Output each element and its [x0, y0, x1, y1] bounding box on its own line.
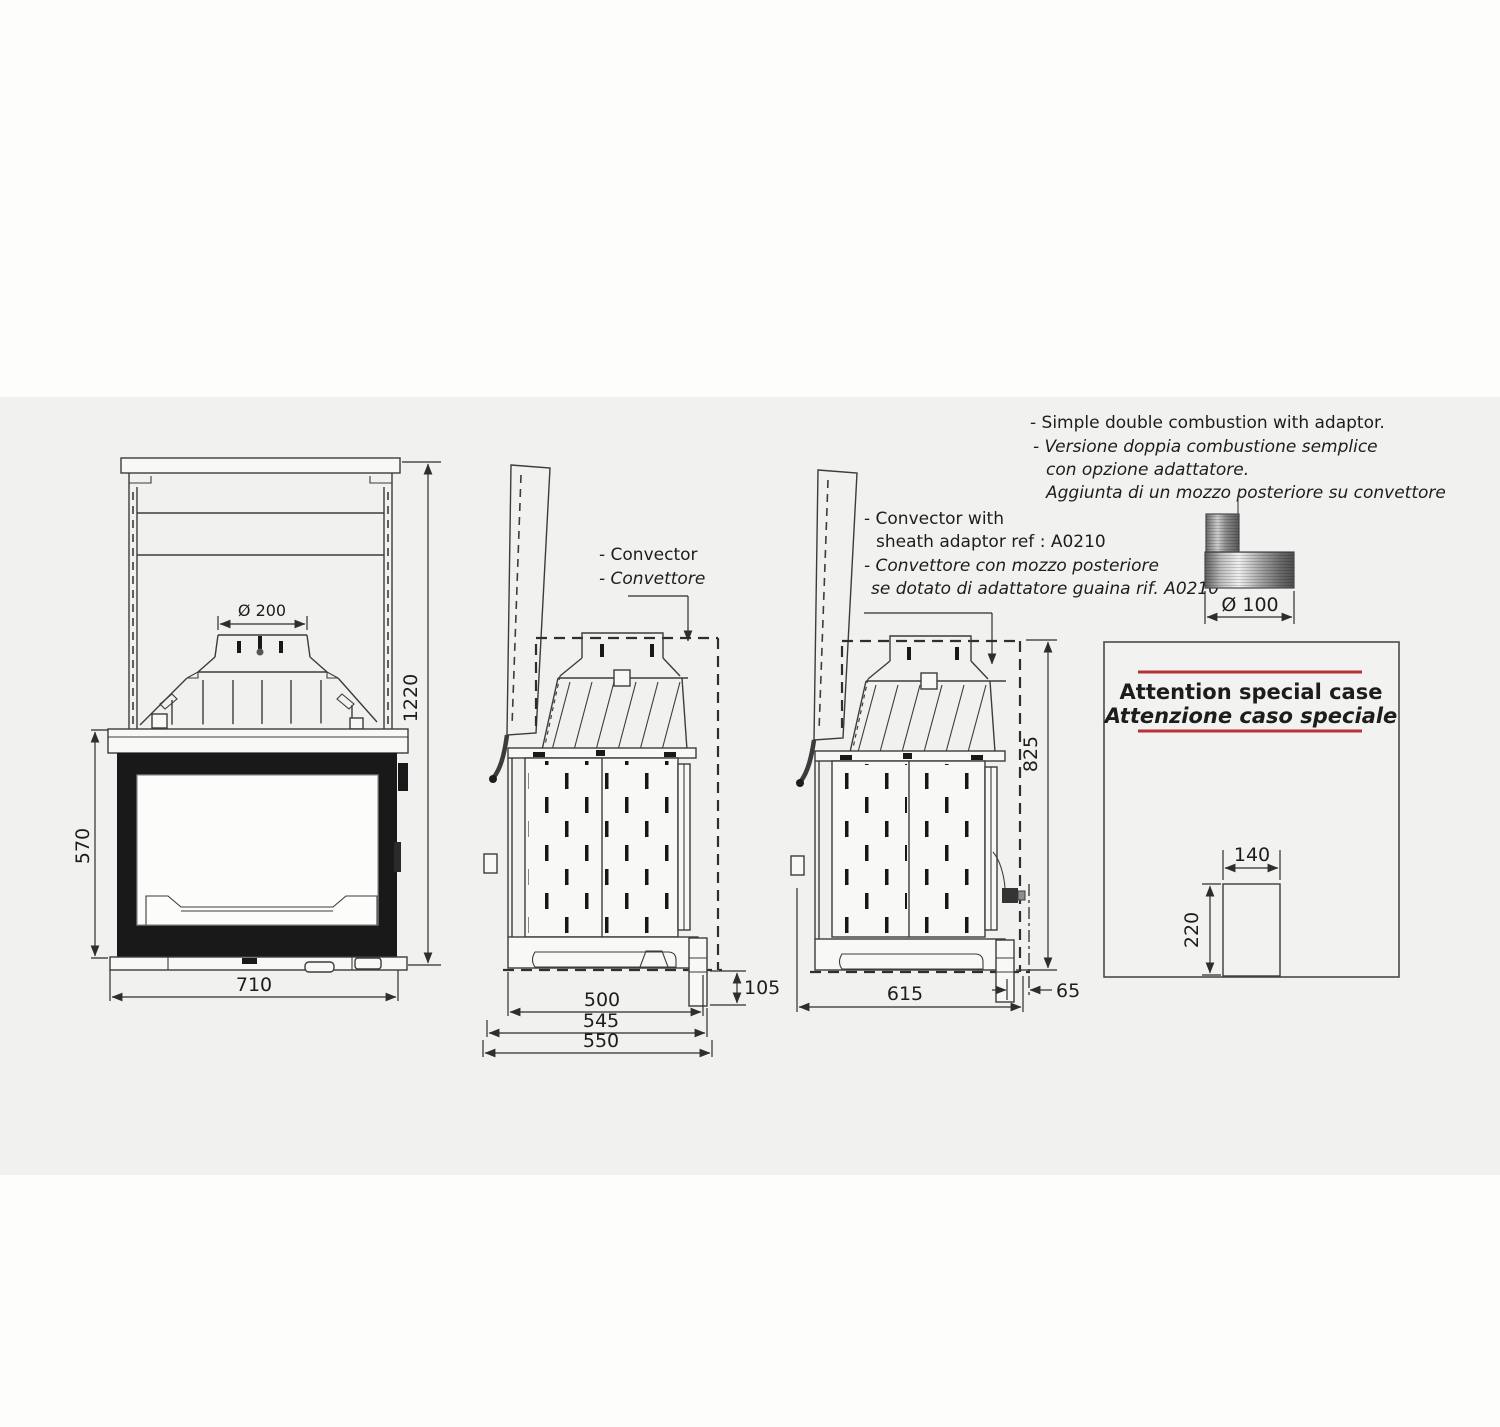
- technical-drawing-page: Ø 200 570 710 1220: [0, 0, 1500, 1427]
- attention-title-it: Attenzione caso speciale: [1103, 704, 1398, 728]
- fireplace-dimension-drawing: Ø 200 570 710 1220: [0, 0, 1500, 1427]
- adapter-diameter-dim: Ø 100: [1221, 594, 1278, 616]
- depth-500-dim: 500: [584, 989, 620, 1011]
- adaptor-note-line2: sheath adaptor ref : A0210: [876, 532, 1106, 552]
- attention-height-dim: 220: [1181, 912, 1203, 948]
- depth-545-dim: 545: [583, 1010, 619, 1032]
- note-line4: Aggiunta di un mozzo posteriore su conve…: [1045, 483, 1446, 503]
- convector-label-en: - Convector: [599, 545, 698, 565]
- total-height-dim: 1220: [400, 674, 422, 722]
- note-line1: - Simple double combustion with adaptor.: [1030, 413, 1385, 433]
- depth-615-dim: 615: [887, 983, 923, 1005]
- convector-label-it: - Convettore: [599, 569, 705, 589]
- offset-65-dim: 65: [1056, 980, 1080, 1002]
- adaptor-note-line3: - Convettore con mozzo posteriore: [864, 556, 1159, 576]
- flue-diameter-dim: Ø 200: [238, 601, 286, 620]
- note-line2: - Versione doppia combustione semplice: [1033, 437, 1378, 457]
- depth-550-dim: 550: [583, 1030, 619, 1052]
- adaptor-note-line4: se dotato di adattatore guaina rif. A021…: [871, 579, 1219, 599]
- front-width-dim: 710: [236, 974, 272, 996]
- attention-panel: Attention special case Attenzione caso s…: [1103, 642, 1399, 977]
- note-line3: con opzione adattatore.: [1046, 460, 1249, 480]
- height-825-dim: 825: [1020, 736, 1042, 772]
- hearth-drop-dim: 105: [744, 977, 780, 999]
- attention-title-en: Attention special case: [1120, 680, 1383, 704]
- adaptor-note-line1: - Convector with: [864, 509, 1004, 529]
- attention-width-dim: 140: [1234, 844, 1270, 866]
- firebox-height-dim: 570: [72, 828, 94, 864]
